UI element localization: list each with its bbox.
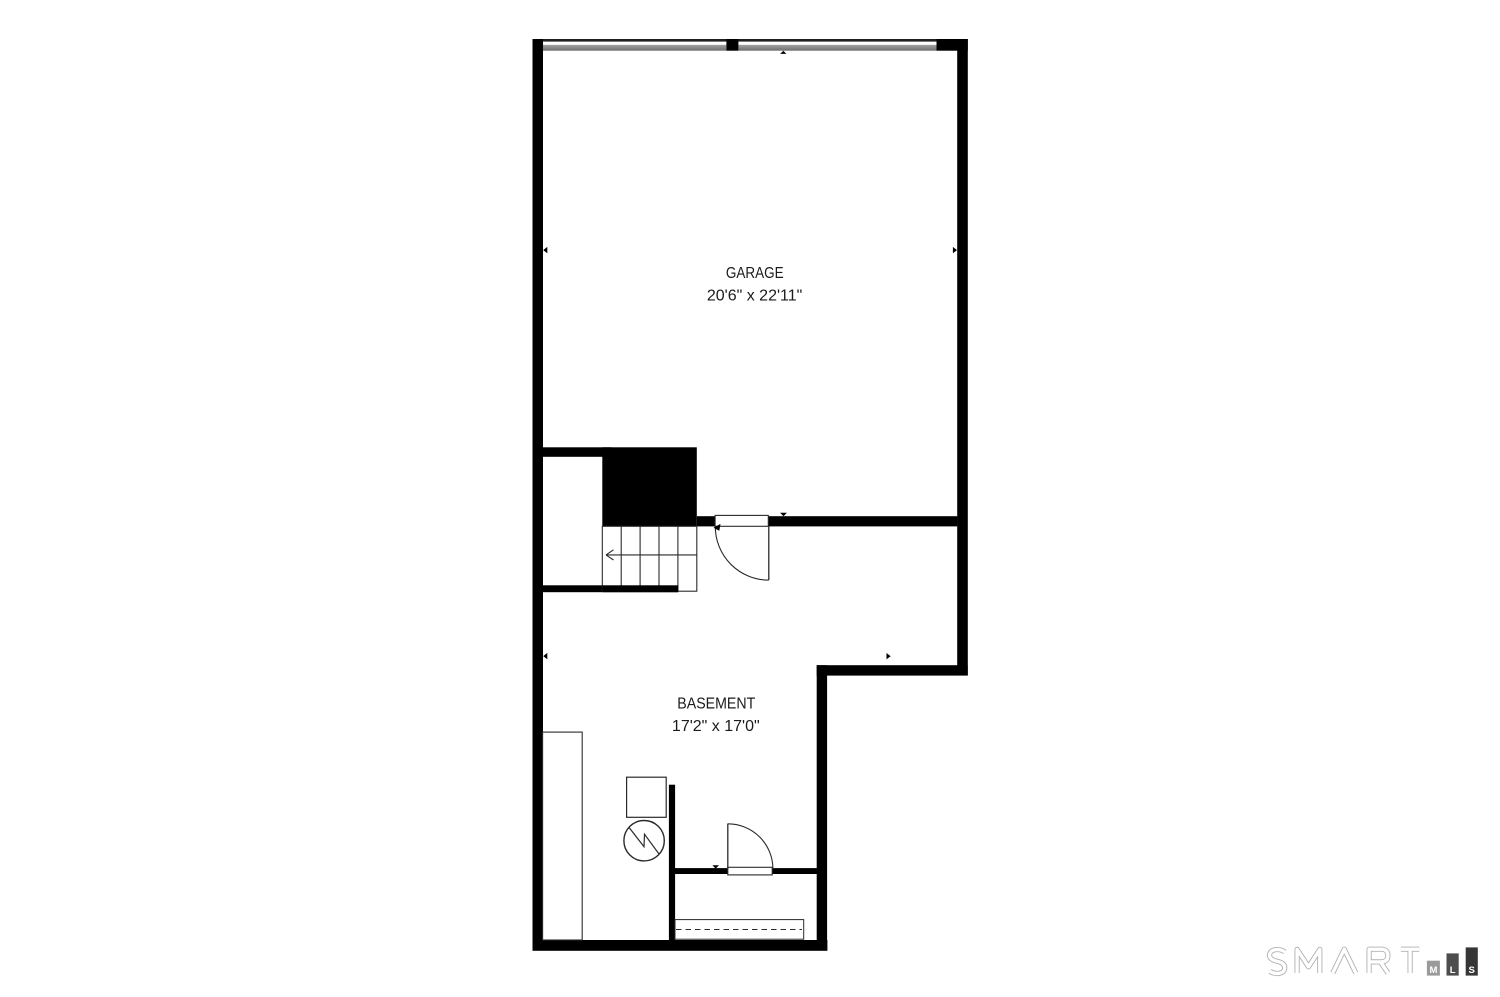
svg-text:20'6" x 22'11": 20'6" x 22'11": [707, 288, 802, 305]
svg-text:M: M: [1429, 965, 1437, 976]
svg-text:17'2" x 17'0": 17'2" x 17'0": [672, 718, 760, 735]
svg-text:S: S: [1469, 965, 1475, 976]
svg-text:GARAGE: GARAGE: [726, 265, 784, 282]
svg-text:L: L: [1450, 965, 1456, 976]
svg-text:BASEMENT: BASEMENT: [677, 695, 755, 712]
